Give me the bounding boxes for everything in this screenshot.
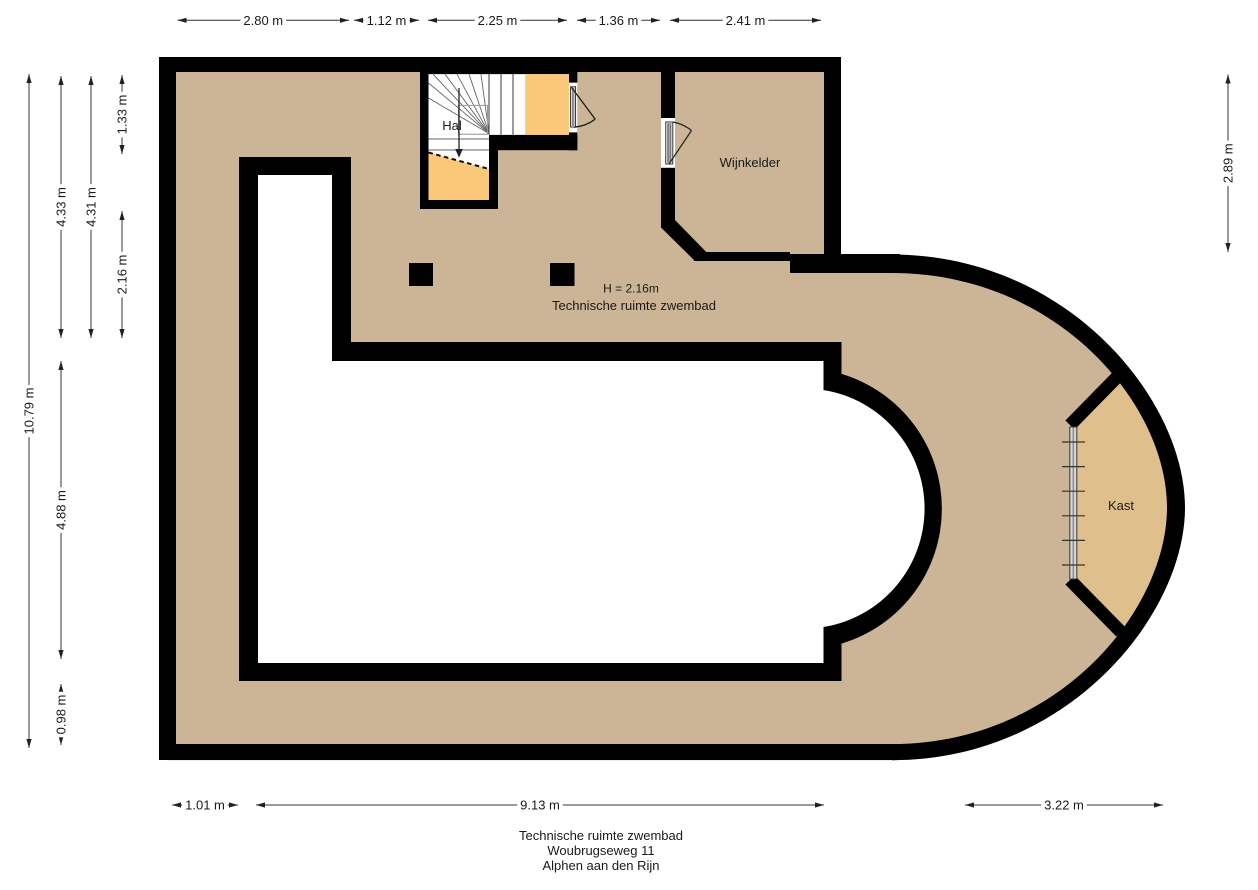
svg-text:4.88 m: 4.88 m — [54, 490, 69, 530]
svg-text:Technische ruimte zwembad: Technische ruimte zwembad — [552, 298, 716, 313]
svg-text:4.31 m: 4.31 m — [84, 187, 99, 227]
svg-text:2.80 m: 2.80 m — [243, 13, 283, 28]
svg-text:Hal: Hal — [442, 118, 462, 133]
svg-text:Alphen aan den Rijn: Alphen aan den Rijn — [542, 858, 659, 873]
svg-text:10.79 m: 10.79 m — [22, 388, 37, 435]
svg-text:H = 2.16m: H = 2.16m — [603, 282, 659, 296]
svg-text:1.01 m: 1.01 m — [185, 798, 225, 813]
svg-text:Kast: Kast — [1108, 498, 1134, 513]
svg-text:2.89 m: 2.89 m — [1221, 143, 1236, 183]
svg-text:Wijnkelder: Wijnkelder — [720, 155, 781, 170]
svg-text:3.22 m: 3.22 m — [1044, 798, 1084, 813]
svg-text:Woubrugseweg 11: Woubrugseweg 11 — [547, 843, 654, 858]
svg-text:9.13 m: 9.13 m — [520, 798, 560, 813]
svg-text:0.98 m: 0.98 m — [54, 695, 69, 735]
svg-text:1.12 m: 1.12 m — [367, 13, 407, 28]
svg-text:1.36 m: 1.36 m — [599, 13, 639, 28]
svg-text:2.16 m: 2.16 m — [115, 255, 130, 295]
svg-text:4.33 m: 4.33 m — [54, 187, 69, 227]
svg-text:2.25 m: 2.25 m — [478, 13, 518, 28]
svg-text:2.41 m: 2.41 m — [726, 13, 766, 28]
svg-text:Technische ruimte zwembad: Technische ruimte zwembad — [519, 828, 683, 843]
svg-text:1.33 m: 1.33 m — [115, 95, 130, 135]
